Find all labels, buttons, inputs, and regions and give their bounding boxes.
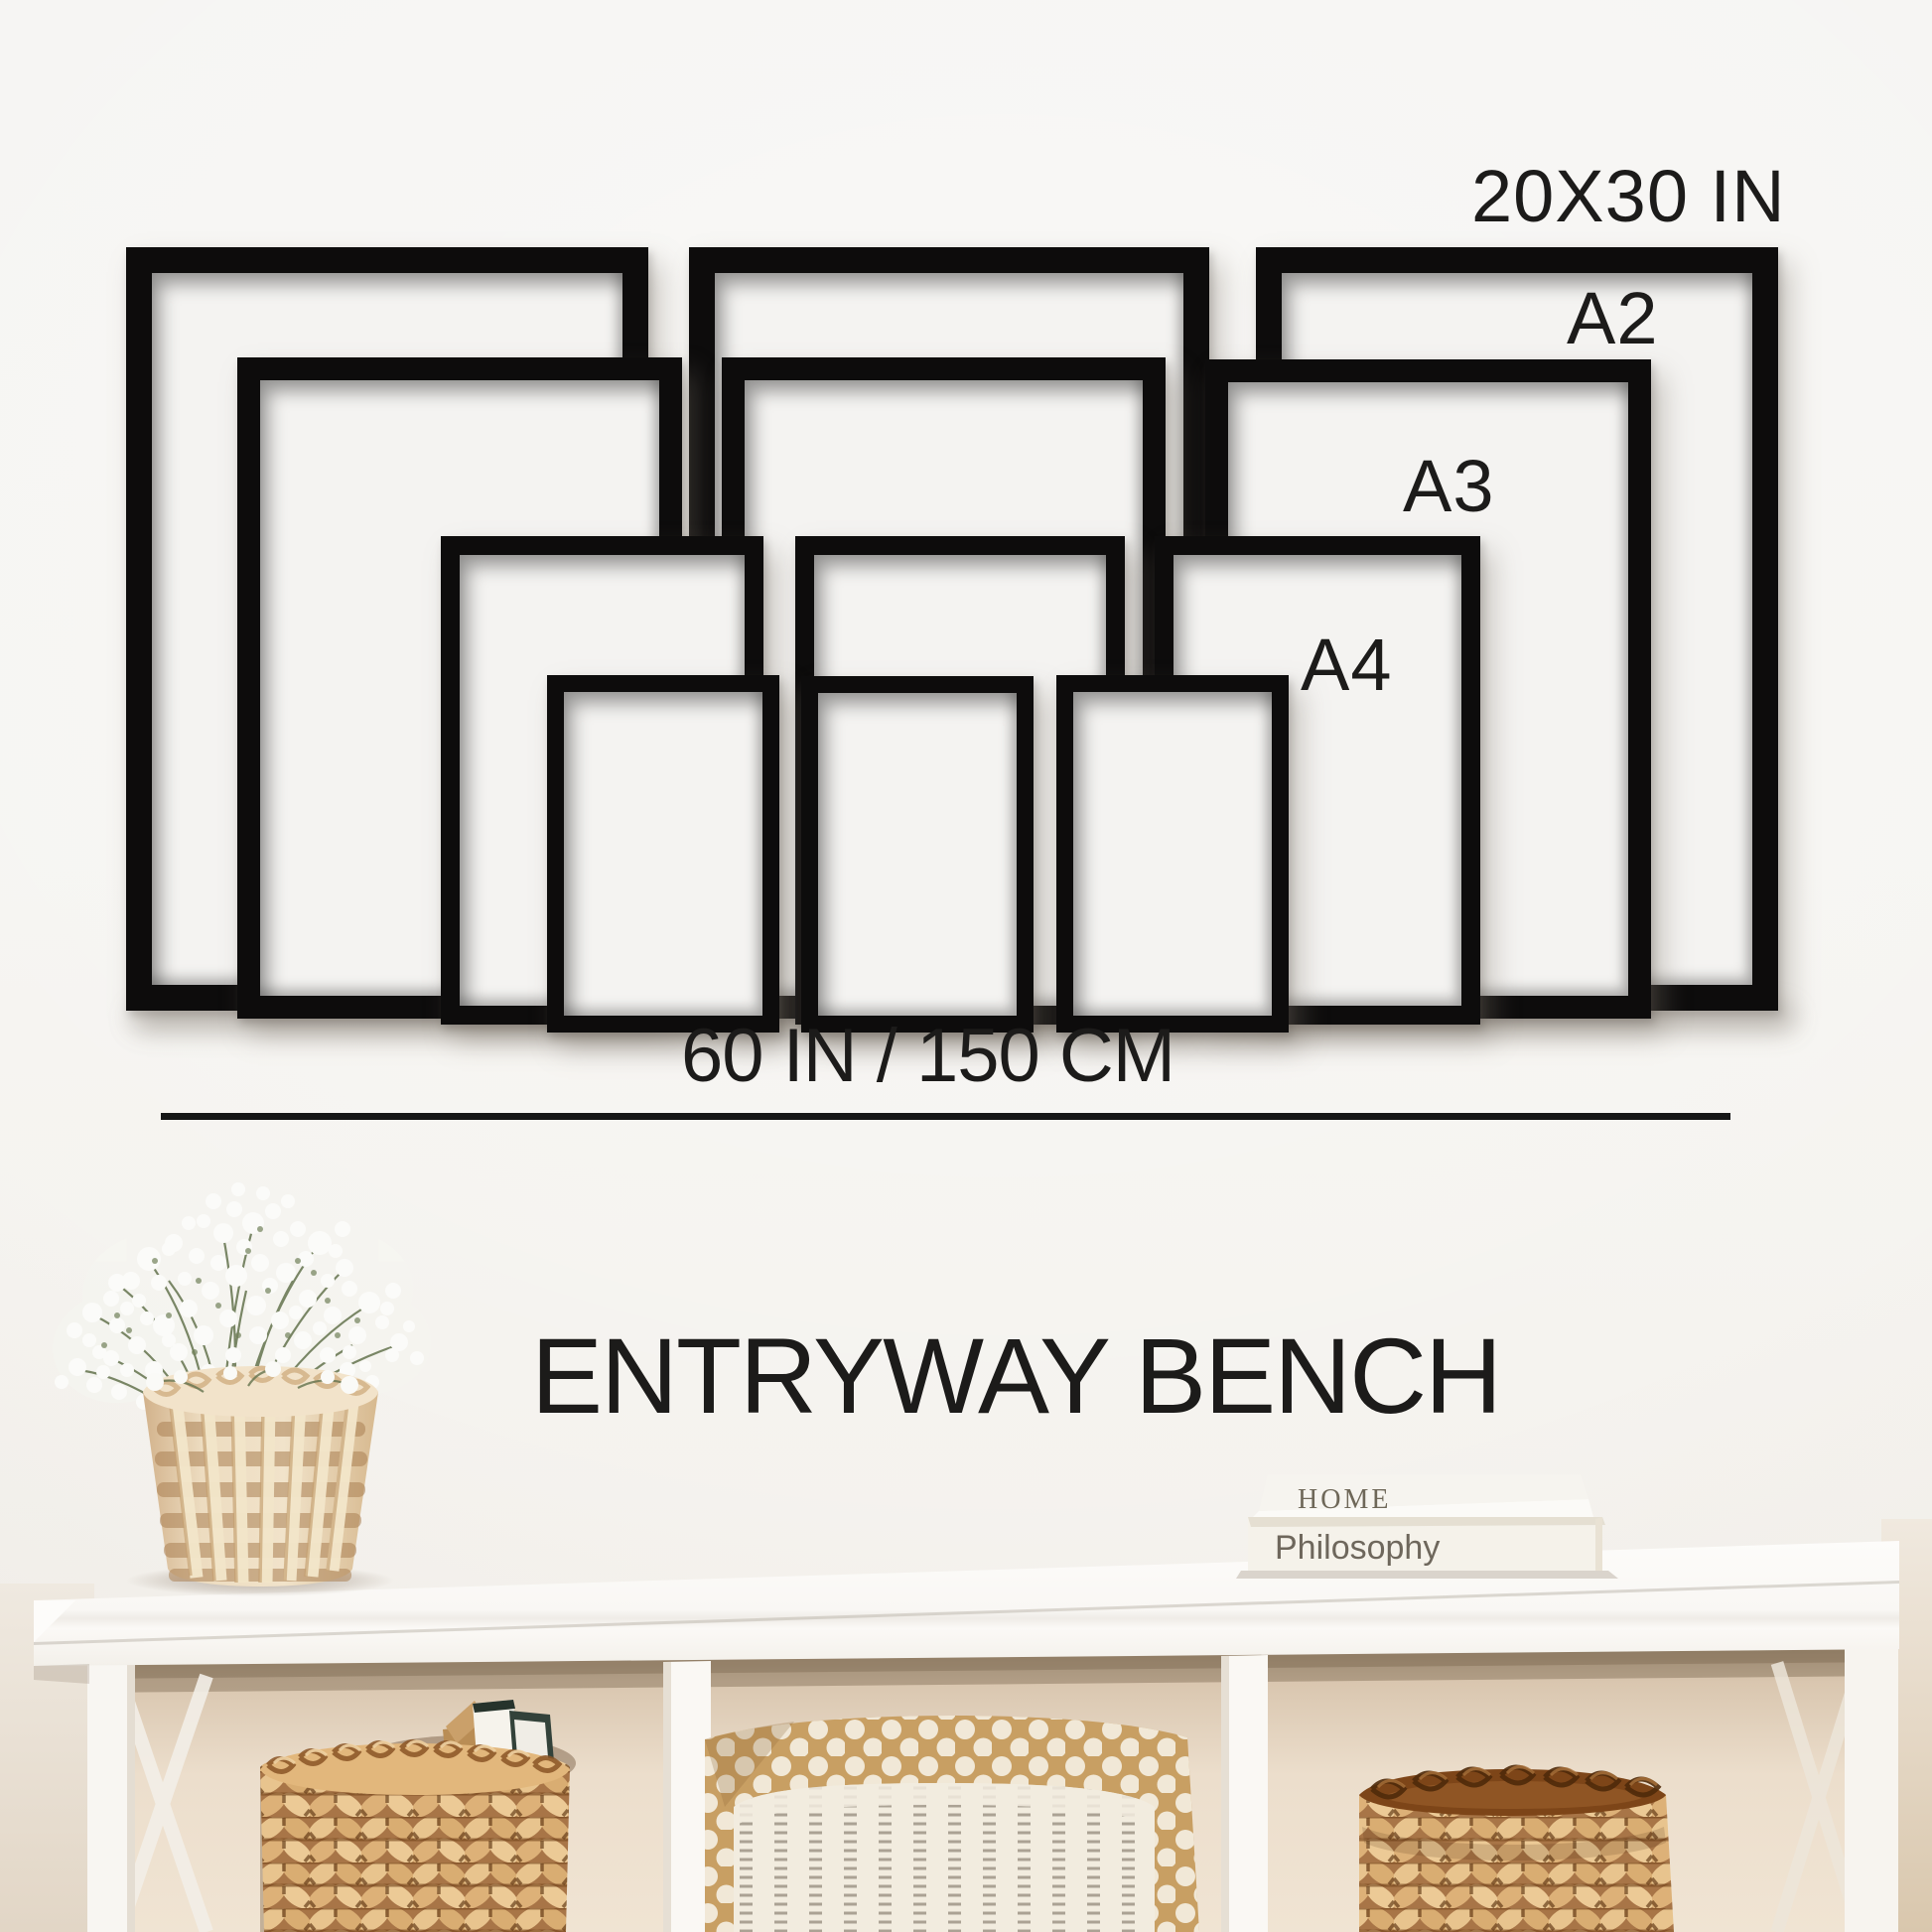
- svg-text:HOME: HOME: [1298, 1484, 1391, 1515]
- svg-text:Philosophy: Philosophy: [1275, 1529, 1440, 1567]
